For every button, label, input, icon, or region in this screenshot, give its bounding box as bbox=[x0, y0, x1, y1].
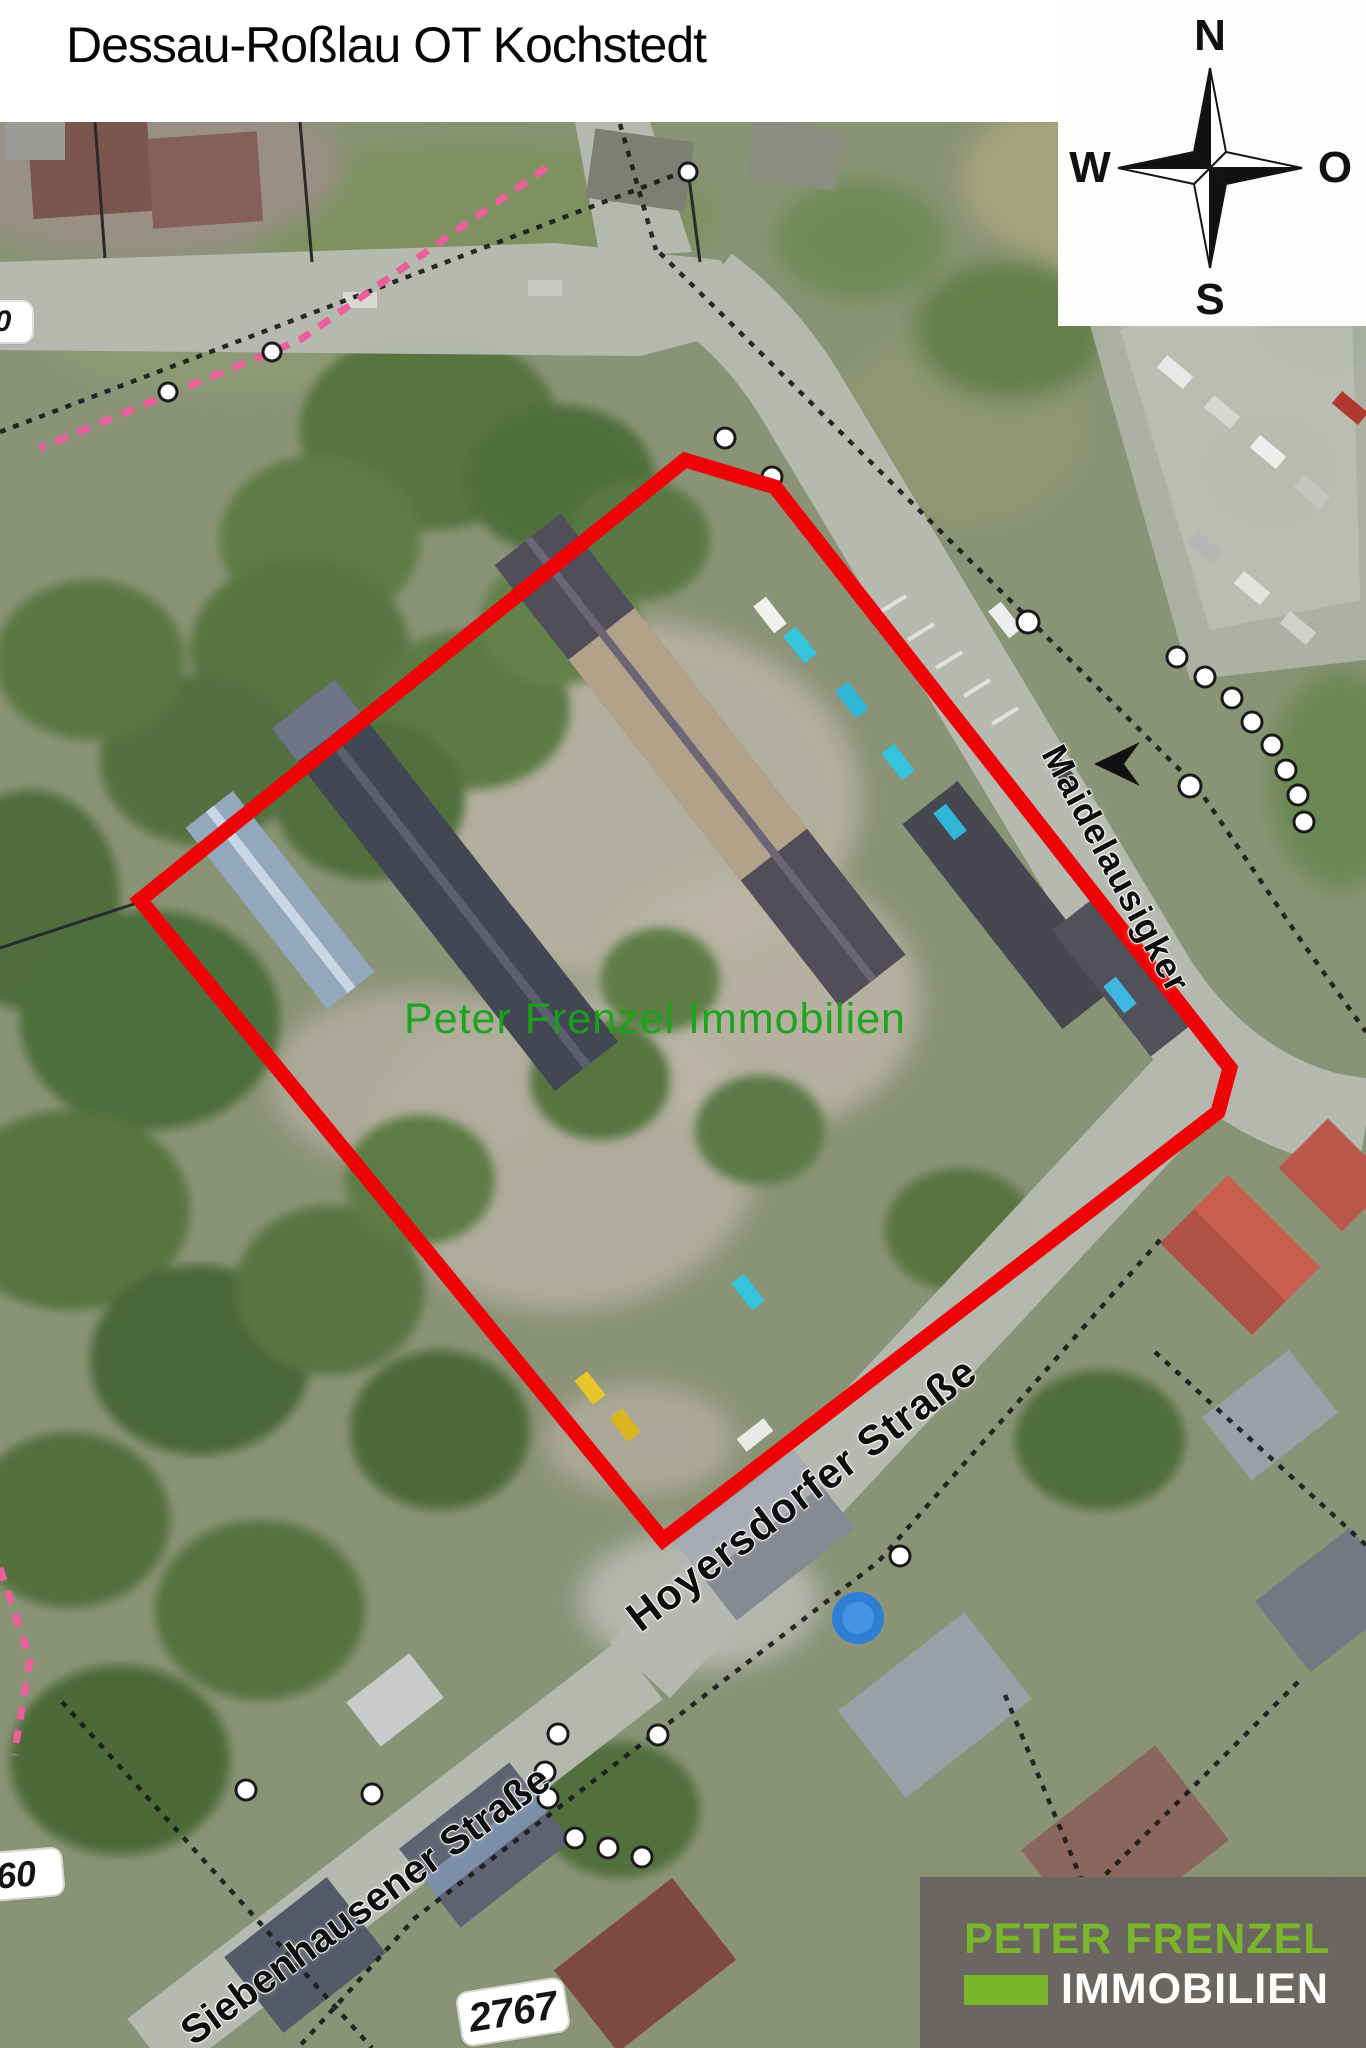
logo-second-row: IMMOBILIEN bbox=[964, 1965, 1329, 2014]
compass-west-label: W bbox=[1069, 146, 1111, 190]
compass-east-label: O bbox=[1318, 146, 1352, 190]
road-number-badge-partial-top: 0 bbox=[0, 302, 32, 342]
property-expose-page: Dessau-Roßlau OT Kochstedt N O S W Peter… bbox=[0, 0, 1366, 2048]
compass-panel: N O S W bbox=[1058, 0, 1366, 326]
compass-south-label: S bbox=[1195, 278, 1224, 322]
logo-company-name: PETER FRENZEL bbox=[964, 1915, 1331, 1964]
logo-green-swatch bbox=[964, 1975, 1048, 2005]
compass-north-label: N bbox=[1194, 14, 1226, 58]
company-logo: PETER FRENZEL IMMOBILIEN bbox=[920, 1877, 1366, 2048]
road-number-badge-partial: 60 bbox=[0, 1848, 64, 1902]
logo-business-type: IMMOBILIEN bbox=[1061, 1965, 1329, 2014]
page-title: Dessau-Roßlau OT Kochstedt bbox=[66, 16, 706, 74]
watermark: Peter Frenzel Immobilien bbox=[404, 995, 906, 1044]
